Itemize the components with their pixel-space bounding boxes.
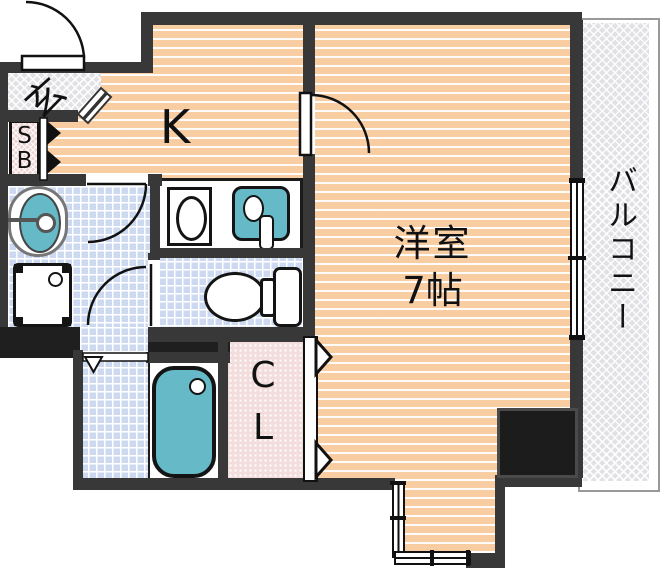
bathtub-faucet (189, 378, 206, 395)
pillar (497, 408, 578, 478)
wall (303, 153, 315, 342)
outside-top-left (0, 0, 141, 62)
pan-corner (62, 317, 71, 326)
wall (303, 478, 395, 490)
wall (0, 62, 141, 73)
pan-corner (14, 317, 23, 326)
toilet-tank (273, 267, 302, 327)
drain-hole (48, 272, 63, 287)
wall (150, 176, 160, 258)
washing-machine-pan (13, 263, 72, 327)
kitchen-sink (232, 186, 290, 241)
floor-plan: S B (0, 0, 660, 569)
kitchen-label: K (160, 100, 190, 154)
wall (303, 20, 315, 95)
western-room-label: 洋室 (375, 213, 490, 267)
wall (148, 253, 160, 332)
wall (73, 478, 315, 490)
toilet-bowl (204, 272, 266, 322)
washbasin-faucet-knob (36, 213, 56, 233)
wall (218, 330, 228, 483)
wall (0, 174, 162, 186)
stove (167, 187, 212, 246)
wall-block (0, 327, 80, 358)
balcony-label: バルコニー (597, 165, 641, 365)
wall (73, 350, 83, 490)
shoe-box-label-s: S (17, 124, 32, 149)
bathroom-floor (80, 327, 152, 483)
wall (141, 12, 153, 73)
closet-label: C L (239, 350, 287, 454)
wall (150, 248, 305, 258)
wall (0, 62, 8, 332)
stove-burner (176, 196, 207, 241)
sink-faucet (259, 215, 274, 250)
bathtub (152, 366, 216, 478)
shoe-box-label-b: B (17, 149, 33, 174)
wall (141, 12, 582, 25)
shoe-box: S B (9, 120, 40, 178)
wall (148, 327, 315, 342)
pan-corner (14, 264, 23, 273)
wall (466, 553, 505, 568)
wall (570, 20, 583, 182)
western-room-size-label: 7帖 (375, 260, 490, 314)
pan-corner (62, 264, 71, 273)
